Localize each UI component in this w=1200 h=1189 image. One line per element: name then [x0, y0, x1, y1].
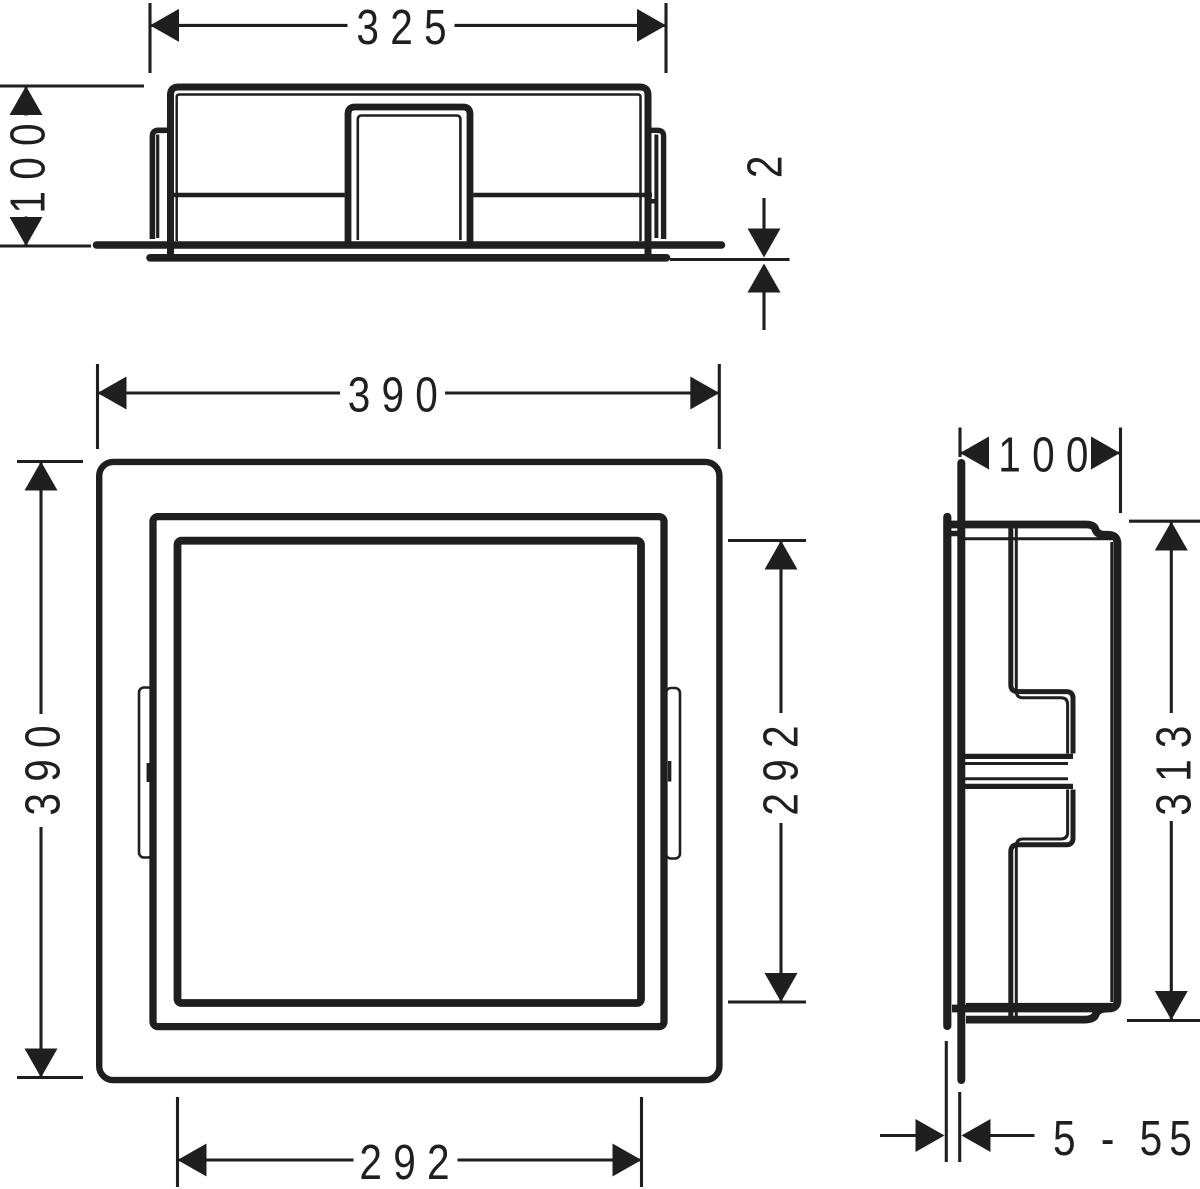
svg-text:325: 325 — [356, 0, 457, 55]
svg-text:390: 390 — [15, 714, 71, 815]
svg-text:100: 100 — [0, 112, 55, 213]
svg-text:5 - 55: 5 - 55 — [1053, 1110, 1200, 1166]
svg-text:2: 2 — [737, 144, 793, 178]
svg-text:390: 390 — [348, 367, 449, 423]
svg-text:292: 292 — [753, 714, 809, 815]
svg-text:292: 292 — [359, 1134, 460, 1189]
svg-text:100: 100 — [998, 427, 1099, 483]
svg-text:313: 313 — [1146, 714, 1200, 815]
